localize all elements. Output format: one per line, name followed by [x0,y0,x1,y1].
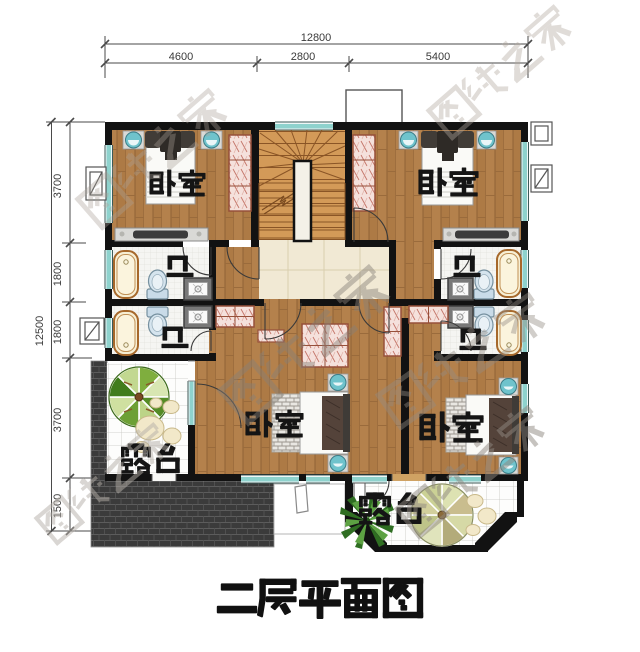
svg-text:12800: 12800 [301,32,332,44]
svg-text:3700: 3700 [52,408,64,432]
svg-text:1800: 1800 [52,320,64,344]
svg-text:5400: 5400 [426,51,450,63]
svg-text:1800: 1800 [52,262,64,286]
svg-text:2800: 2800 [291,51,315,63]
svg-text:3700: 3700 [52,174,64,198]
svg-text:12500: 12500 [34,316,46,347]
svg-text:4600: 4600 [169,51,193,63]
